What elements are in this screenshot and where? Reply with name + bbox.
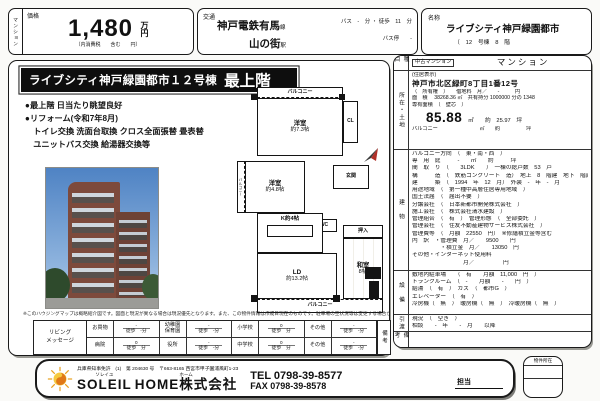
- detail-row-tatemono-14: その他・インターネット使用料: [412, 252, 588, 259]
- detail-row-tatemono-6: 国土法届 （ 届出不要 ）: [412, 194, 588, 201]
- detail-row-shumoku-0: 中古マンションマンション: [412, 57, 588, 67]
- transport-line: 神戸電鉄有馬線: [203, 16, 337, 34]
- detail-row-tatemono-11: 管理費等 （ 月額 22550 円） ※修繕積立金等含む: [412, 231, 588, 238]
- parking: 敷地内駐車場 （ 有 月額 11,000 円 ）: [412, 272, 540, 278]
- access-walk-time: 徒歩 分: [272, 329, 291, 335]
- access-walk-time: 徒歩 -分: [126, 329, 147, 335]
- management-fee: 管理費等 （ 月額 22550 円） ※修繕積立金等含む: [412, 231, 552, 237]
- section-tatemono: 建 物バルコニー方向 （ 東・南・西 ）専 用 庭 - ㎡ 約 坪間 取 り （…: [394, 150, 591, 271]
- detail-row-tatemono-4: 建 築 （ 1994 年 12 月） 外装 - 年 - 月: [412, 180, 588, 187]
- floorplan-oshiire: 押入: [343, 225, 383, 238]
- access-cell-1-0: 病院0徒歩 分: [87, 338, 160, 355]
- layout: 間 取 り （ 3LDK ） 一棟の総戸数 53 戸: [412, 165, 552, 171]
- company-logo-sun-icon: [47, 366, 73, 392]
- floorplan-kitchen: K約4帖: [257, 213, 323, 253]
- floorplan-balcony-top: バルコニー: [257, 87, 343, 98]
- detail-row-setsubi-4: 冷房機（ 無 ） 暖房機（ 無 ） 冷暖房機（ 無 ）: [412, 301, 588, 308]
- access-place-label: その他: [305, 321, 332, 337]
- name-soleil: SOLEIL: [77, 378, 132, 392]
- detail-row-shozai-3: 面 積 38268.36 ㎡ 共有持分 1000000 分の 1348: [412, 95, 588, 102]
- living-message-line1: リビング: [49, 330, 71, 338]
- company-footer: 兵庫県知事免許 (1) 第 204630 号 〒663-8165 西宮市甲子園浦…: [35, 359, 515, 398]
- access-value: -徒歩 -分: [187, 321, 232, 337]
- section-biko: 備 考: [394, 332, 591, 347]
- property-name: ライブシティ神戸緑園都市: [446, 21, 585, 35]
- management-company: 管理会社 （ 住友不動産建物サービス株式会社 ）: [412, 223, 546, 229]
- property-type: マンション: [458, 58, 588, 67]
- access-value: 0徒歩 分: [259, 338, 304, 355]
- oshiire-label: 押入: [358, 229, 368, 235]
- section-rows-shozai: (住居表示)神戸市北区緑町8丁目1番12号（ 所有権 ） 借地料 月／ - 円面…: [409, 71, 591, 149]
- property-location-label: 物件所在: [524, 357, 562, 366]
- transport-station: 山の街駅: [203, 34, 337, 52]
- floorplan-entrance: 玄関: [333, 165, 369, 189]
- company-name: ソレイユ SOLEIL ホーム HOME株式会社: [77, 373, 240, 392]
- license-line: 兵庫県知事免許 (1) 第 204630 号 〒663-8165 西宮市甲子園浦…: [77, 365, 240, 372]
- photo-building-windows: [72, 188, 114, 296]
- elevator-shaft: [365, 267, 381, 279]
- stair-shaft: [369, 281, 379, 299]
- access-place-label: お買物: [87, 321, 114, 337]
- section-rows-biko: [409, 332, 591, 347]
- section-label-biko: 備 考: [394, 332, 409, 347]
- bus-stop-info: バス停 -: [341, 34, 412, 52]
- detail-row-tatemono-9: 管理組合 （ 有 ） 管理形態 （ 全部委託 ）: [412, 216, 588, 223]
- detail-row-setsubi-1: トランクルーム （ - 月額 - 円 ）: [412, 279, 588, 286]
- detail-row-hikiwatashi-1: 相談 - 年 - 月 以降: [412, 323, 588, 330]
- access-value: -徒歩 -分: [332, 338, 377, 355]
- category-tab: マンション: [9, 9, 23, 54]
- access-value: -徒歩 -分: [114, 321, 159, 337]
- aircon: 冷房機（ 無 ） 暖房機（ 無 ） 冷暖房機（ 無 ）: [412, 301, 560, 307]
- feature-bullet-1: ●リフォーム(令和7年8月): [25, 112, 240, 125]
- detail-row-shozai-5: 85.88 ㎡ 約 25.97 坪: [412, 109, 588, 126]
- fee-other-value: 月／ 円: [412, 260, 509, 266]
- access-grid: お買物-徒歩 -分幼稚園 保育園-徒歩 -分小学校0徒歩 分その他-徒歩 -分病…: [87, 321, 377, 354]
- property-name-sub: （ 12 号棟 8 階: [454, 37, 585, 46]
- detail-row-shozai-2: （ 所有権 ） 借地料 月／ - 円: [412, 89, 588, 96]
- section-setsubi: 設 備敷地内駐車場 （ 有 月額 11,000 円 ）トランクルーム （ - 月…: [394, 271, 591, 315]
- access-place-label: 役所: [160, 338, 187, 355]
- name-label: 名称: [428, 13, 440, 22]
- fax-number: FAX 0798-39-8578: [250, 382, 342, 392]
- access-walk-time: 徒歩 -分: [198, 346, 219, 352]
- price-main: 価格 1,480 万円 （内消費税 含む 円）: [23, 9, 193, 54]
- exclusive-area-value: 85.88: [426, 110, 462, 125]
- access-table: リビング メッセージ お買物-徒歩 -分幼稚園 保育園-徒歩 -分小学校0徒歩 …: [33, 320, 391, 355]
- access-cell-0-0: お買物-徒歩 -分: [87, 321, 160, 338]
- kitchen-counter: [267, 225, 313, 237]
- floorplan-living-dining: LD 約13.2帖: [257, 253, 337, 299]
- access-walk-time: 徒歩 -分: [343, 329, 364, 335]
- contact-numbers: TEL 0798-39-8577 FAX 0798-39-8578: [250, 370, 342, 394]
- access-walk-time: 徒歩 -分: [343, 346, 364, 352]
- access-cell-1-3: その他-徒歩 -分: [305, 338, 378, 355]
- property-location-box: 物件所在: [523, 356, 563, 398]
- developer: 分譲会社 （ 日本新都市開発株式会社 ）: [412, 202, 523, 208]
- access-place-label: 病院: [87, 338, 114, 355]
- access-walk-time: 徒歩 分: [272, 346, 291, 352]
- detail-row-shozai-4: 専有面積 （ 壁芯 ）: [412, 102, 588, 109]
- photo-building-tower: [68, 182, 120, 300]
- access-cell-0-3: その他-徒歩 -分: [305, 321, 378, 338]
- wall-column: [333, 295, 340, 302]
- photo-tree: [45, 268, 70, 302]
- staff-in-charge-label: 担当: [455, 377, 503, 389]
- section-label-tatemono: 建 物: [394, 150, 409, 270]
- floorplan-balcony-side: バルコニー: [237, 161, 245, 213]
- address: 神戸市北区緑町8丁目1番12号: [412, 79, 518, 88]
- access-place-label: 中学校: [232, 338, 259, 355]
- access-cell-1-2: 中学校0徒歩 分: [232, 338, 305, 355]
- access-cell-0-2: 小学校0徒歩 分: [232, 321, 305, 338]
- hot-water-gas: 給湯 （ 有 ） ガス （ 都市G ）: [412, 286, 510, 292]
- company-name-soleil: ソレイユ SOLEIL: [77, 373, 132, 392]
- balcony-area: バルコニー ㎡ 約 坪: [412, 126, 531, 132]
- detail-row-tatemono-3: 構 造 （ 鉄筋コンクリート 造） 地上 8 階建 地下 階建: [412, 173, 588, 180]
- access-place-label: 小学校: [232, 321, 259, 337]
- map-disclaimer: ※このハウジングマップは概略紹介図です。図面と現況が異なる場合は現況優先となりま…: [23, 311, 389, 317]
- photo-road: [46, 298, 158, 308]
- exclusive-area-label: 専有面積 （ 壁芯 ）: [412, 102, 466, 108]
- price-value: 1,480: [68, 15, 133, 43]
- trunk-room: トランクルーム （ - 月額 - 円 ）: [412, 279, 532, 285]
- detail-row-shozai-1: 神戸市北区緑町8丁目1番12号: [412, 79, 588, 89]
- detail-row-shozai-6: バルコニー ㎡ 約 坪: [412, 126, 588, 133]
- zoning: 用途地域 （ 第一種中高層住居専用地域 ）: [412, 187, 529, 193]
- land-act: 国土法届 （ 届出不要 ）: [412, 194, 483, 200]
- price-label: 価格: [27, 11, 39, 20]
- detail-row-tatemono-15: 月／ 円: [412, 260, 588, 267]
- management-association: 管理組合 （ 有 ） 管理形態 （ 全部委託 ）: [412, 216, 540, 222]
- detail-row-setsubi-3: エレベーター （ 有 ）: [412, 294, 588, 301]
- access-cell-1-1: 役所-徒歩 -分: [160, 338, 233, 355]
- detail-row-tatemono-5: 用途地域 （ 第一種中高層住居専用地域 ）: [412, 187, 588, 194]
- detail-row-tatemono-1: 専 用 庭 - ㎡ 約 坪: [412, 158, 588, 165]
- detail-row-tatemono-10: 管理会社 （ 住友不動産建物サービス株式会社 ）: [412, 223, 588, 230]
- property-name-box: 名称 ライブシティ神戸緑園都市 （ 12 号棟 8 階: [421, 8, 592, 55]
- kitchen-label: K約4帖: [281, 216, 299, 222]
- rail-line: 神戸電鉄有馬: [217, 20, 280, 32]
- feature-bullets: ●最上階 日当たり眺望良好●リフォーム(令和7年8月) トイレ交換 洗面台取換 …: [25, 99, 240, 152]
- listing-title: ライブシティ神戸緑園都市１２号棟: [29, 72, 217, 88]
- section-rows-hikiwatashi: 現況 （ 空き ）相談 - 年 - 月 以降: [409, 315, 591, 331]
- detail-row-setsubi-2: 給湯 （ 有 ） ガス （ 都市G ）: [412, 286, 588, 293]
- bus-walk-info: バス - 分 ・ 徒歩 11 分: [341, 17, 412, 34]
- price-unit: 万円: [140, 21, 148, 37]
- rail-line-suffix: 線: [280, 25, 286, 31]
- land-right: （ 所有権 ） 借地料 月／ - 円: [412, 89, 520, 95]
- name-home: HOME株式会社: [135, 378, 238, 392]
- access-value: 0徒歩 分: [114, 338, 159, 355]
- fee-other-label: その他・インターネット使用料: [412, 252, 492, 258]
- section-rows-tatemono: バルコニー方向 （ 東・南・西 ）専 用 庭 - ㎡ 約 坪間 取 り （ 3L…: [409, 150, 591, 270]
- north-arrow-icon: [361, 145, 381, 165]
- station-suffix: 駅: [281, 43, 287, 49]
- company-info: 兵庫県知事免許 (1) 第 204630 号 〒663-8165 西宮市甲子園浦…: [77, 365, 240, 392]
- fee-breakdown-kanri: 内 訳 ・管理費 月／ 9500 円: [412, 238, 516, 244]
- access-place-label: 幼稚園 保育園: [160, 321, 187, 337]
- main-panel: ライブシティ神戸緑園都市１２号棟 最上階 ●最上階 日当たり眺望良好●リフォーム…: [8, 60, 390, 356]
- property-location-blank-row: [524, 366, 562, 379]
- private-garden: 専 用 庭 - ㎡ 約 坪: [412, 158, 516, 164]
- detail-row-tatemono-13: ・積立金 月／ 13050 円: [412, 245, 588, 252]
- access-value: -徒歩 -分: [187, 338, 232, 355]
- section-hikiwatashi: 引渡現況 （ 空き ）相談 - 年 - 月 以降: [394, 315, 591, 332]
- detail-row-tatemono-2: 間 取 り （ 3LDK ） 一棟の総戸数 53 戸: [412, 165, 588, 172]
- fee-breakdown-tsumitate: ・積立金 月／ 13050 円: [412, 245, 519, 251]
- wall-column: [251, 94, 257, 100]
- handover-timing: 相談 - 年 - 月 以降: [412, 323, 495, 329]
- floorplan-closet: CL: [343, 101, 358, 143]
- builder: 施工会社 （ 株式会社清水建設 ）: [412, 209, 506, 215]
- detail-row-setsubi-0: 敷地内駐車場 （ 有 月額 11,000 円 ）: [412, 272, 588, 279]
- photo-tree-2: [142, 274, 159, 300]
- feature-bullet-2: トイレ交換 洗面台取換 クロス全面張替 畳表替: [25, 125, 240, 138]
- company-name-home: ホーム HOME株式会社: [135, 373, 238, 392]
- property-category: 中古マンション: [412, 59, 454, 67]
- balcony-bottom-label: バルコニー: [308, 303, 333, 309]
- detail-panel: 種目中古マンションマンション所在・土地(住居表示)神戸市北区緑町8丁目1番12号…: [393, 55, 592, 348]
- land-area: 面 積 38268.36 ㎡ 共有持分 1000000 分の 1348: [412, 95, 535, 101]
- living-message-line2: メッセージ: [46, 338, 74, 346]
- bedroom2-size: 約4.8帖: [266, 187, 285, 193]
- elevator: エレベーター （ 有 ）: [412, 294, 477, 300]
- access-value: -徒歩 -分: [332, 321, 377, 337]
- detail-row-tatemono-8: 施工会社 （ 株式会社清水建設 ）: [412, 209, 588, 216]
- price-box: マンション 価格 1,480 万円 （内消費税 含む 円）: [8, 8, 194, 55]
- access-value: 0徒歩 分: [259, 321, 304, 337]
- wall-column: [251, 295, 258, 302]
- ld-size: 約13.2帖: [286, 276, 308, 282]
- balcony-direction: バルコニー方向 （ 東・南・西 ）: [412, 151, 506, 157]
- wall-column: [339, 94, 345, 100]
- structure: 構 造 （ 鉄筋コンクリート 造） 地上 8 階建 地下 階建: [412, 173, 588, 179]
- section-label-hikiwatashi: 引渡: [394, 315, 409, 331]
- detail-row-tatemono-12: 内 訳 ・管理費 月／ 9500 円: [412, 238, 588, 245]
- price-tax-note: （内消費税 含む 円）: [27, 41, 189, 48]
- access-walk-time: 徒歩 -分: [198, 329, 219, 335]
- section-label-shozai: 所在・土地: [394, 71, 409, 149]
- section-label-shumoku: 種目: [394, 56, 409, 70]
- access-walk-time: 徒歩 分: [127, 346, 146, 352]
- access-place-label: その他: [305, 338, 332, 355]
- floor-plan: バルコニー 洋室 約7.3帖 CL 洋室 約4.8帖 バルコニー 玄関 WC K…: [235, 85, 387, 315]
- detail-row-tatemono-7: 分譲会社 （ 日本新都市開発株式会社 ）: [412, 202, 588, 209]
- floorplan-bedroom-7-3: 洋室 約7.3帖: [257, 98, 343, 156]
- balcony-top-label: バルコニー: [288, 90, 313, 96]
- floorplan-bedroom-4-8: 洋室 約4.8帖: [245, 161, 305, 213]
- feature-bullet-0: ●最上階 日当たり眺望良好: [25, 99, 240, 112]
- section-shozai: 所在・土地(住居表示)神戸市北区緑町8丁目1番12号（ 所有権 ） 借地料 月／…: [394, 71, 591, 150]
- detail-row-tatemono-0: バルコニー方向 （ 東・南・西 ）: [412, 151, 588, 158]
- current-status: 現況 （ 空き ）: [412, 316, 460, 322]
- access-biko-label: 備考: [377, 321, 390, 354]
- entrance-label: 玄関: [346, 174, 356, 180]
- closet-label: CL: [347, 119, 354, 125]
- section-label-setsubi: 設 備: [394, 271, 409, 314]
- station-name: 山の街: [249, 38, 281, 50]
- address-note: (住居表示): [412, 72, 436, 78]
- exclusive-area-tsubo: ㎡ 約 25.97 坪: [462, 118, 522, 124]
- transport-box: 交通 神戸電鉄有馬線 バス - 分 ・ 徒歩 11 分 山の街駅 バス停 -: [197, 8, 418, 55]
- bedroom1-size: 約7.3帖: [291, 127, 310, 133]
- building-photo: [45, 167, 159, 309]
- section-rows-setsubi: 敷地内駐車場 （ 有 月額 11,000 円 ）トランクルーム （ - 月額 -…: [409, 271, 591, 314]
- price-row: 1,480 万円: [27, 15, 189, 43]
- access-cell-0-1: 幼稚園 保育園-徒歩 -分: [160, 321, 233, 338]
- detail-row-hikiwatashi-0: 現況 （ 空き ）: [412, 316, 588, 323]
- built-date: 建 築 （ 1994 年 12 月） 外装 - 年 - 月: [412, 180, 560, 186]
- section-rows-shumoku: 中古マンションマンション: [409, 56, 591, 70]
- living-message-label: リビング メッセージ: [34, 321, 87, 354]
- detail-row-shozai-0: (住居表示): [412, 72, 588, 79]
- transport-label: 交通: [203, 12, 215, 21]
- section-shumoku: 種目中古マンションマンション: [394, 56, 591, 71]
- transport-grid: 神戸電鉄有馬線 バス - 分 ・ 徒歩 11 分 山の街駅 バス停 -: [203, 16, 412, 52]
- feature-bullet-3: ユニットバス交換 給湯器交換等: [25, 138, 240, 151]
